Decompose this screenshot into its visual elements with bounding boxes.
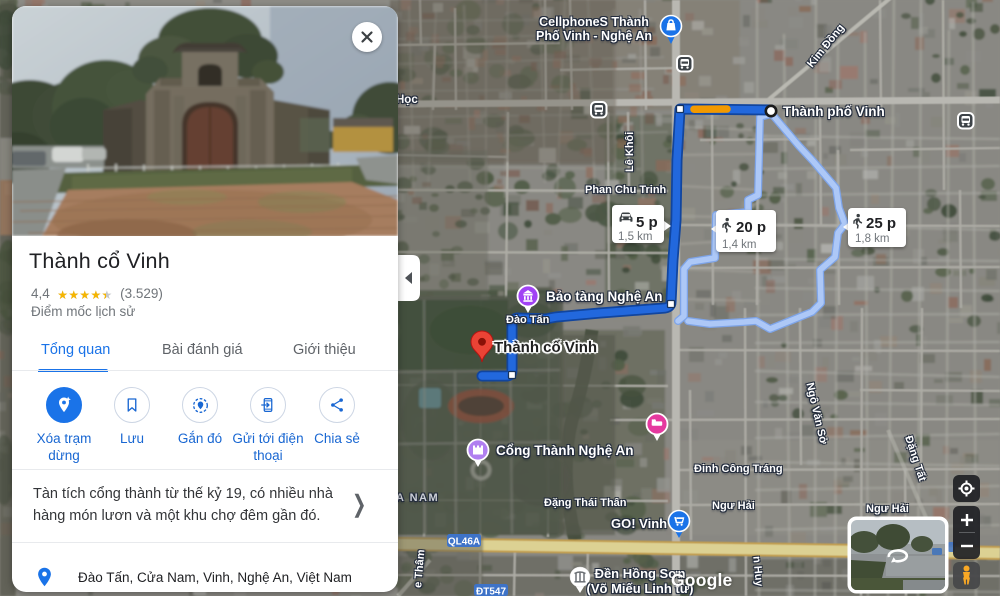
svg-text:ĐT547: ĐT547 bbox=[476, 587, 506, 596]
svg-text:1,8 km: 1,8 km bbox=[855, 233, 890, 245]
svg-text:20 p: 20 p bbox=[736, 219, 766, 236]
svg-text:1,4 km: 1,4 km bbox=[722, 239, 757, 251]
svg-text:25 p: 25 p bbox=[866, 215, 896, 232]
svg-text:1,5 km: 1,5 km bbox=[618, 231, 653, 243]
svg-text:QL46A: QL46A bbox=[448, 537, 480, 548]
svg-text:5 p: 5 p bbox=[636, 214, 658, 231]
